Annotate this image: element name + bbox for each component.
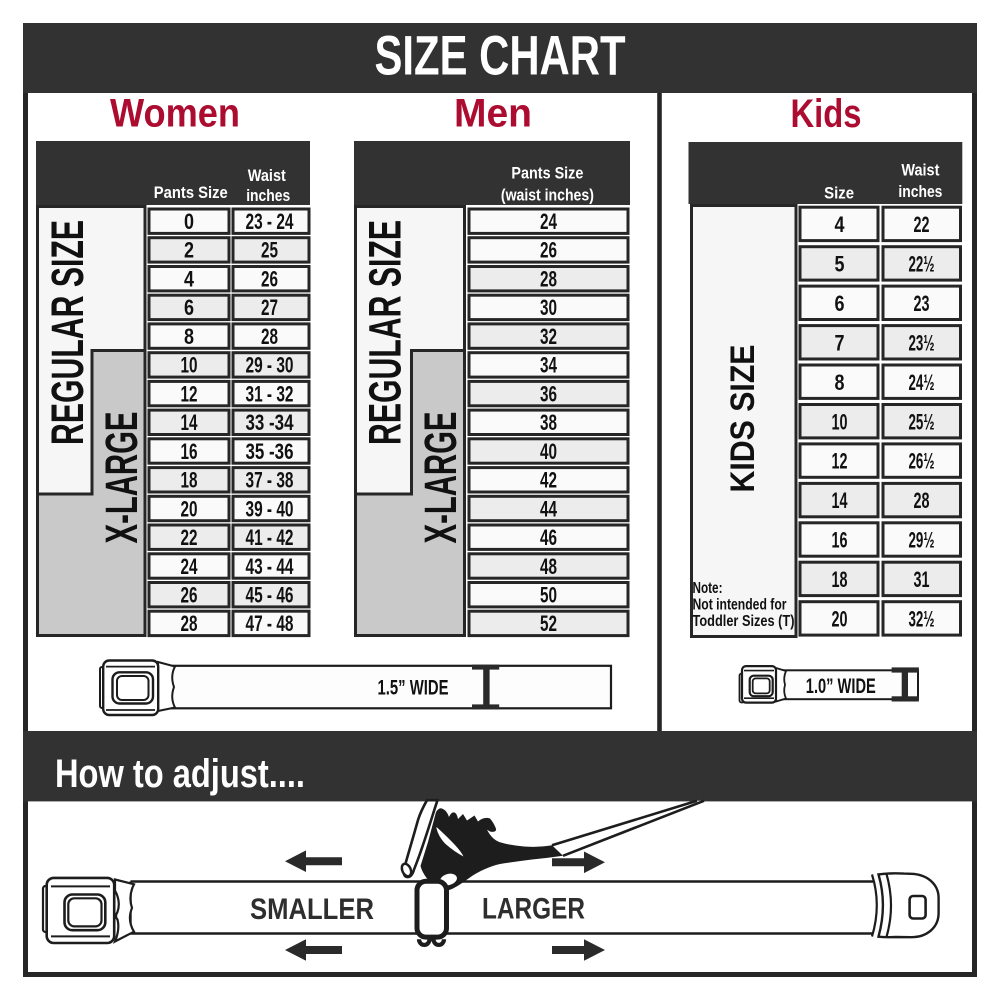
svg-text:4: 4 <box>835 212 846 237</box>
svg-text:(waist inches): (waist inches) <box>501 187 594 205</box>
svg-text:38: 38 <box>540 410 557 435</box>
svg-text:22: 22 <box>181 525 198 550</box>
svg-text:23½: 23½ <box>909 330 935 355</box>
svg-text:50: 50 <box>540 582 557 607</box>
svg-text:0: 0 <box>184 209 194 234</box>
svg-text:4: 4 <box>184 266 195 291</box>
svg-text:How to adjust....: How to adjust.... <box>55 752 305 796</box>
svg-text:31: 31 <box>914 567 930 592</box>
svg-text:37 - 38: 37 - 38 <box>246 468 294 493</box>
svg-text:44: 44 <box>540 496 558 521</box>
svg-text:31 - 32: 31 - 32 <box>246 381 294 406</box>
svg-text:28: 28 <box>261 324 278 349</box>
svg-text:28: 28 <box>914 488 930 513</box>
svg-text:26½: 26½ <box>909 449 935 474</box>
svg-text:Waist: Waist <box>901 162 939 180</box>
svg-text:39 - 40: 39 - 40 <box>246 496 294 521</box>
svg-text:LARGER: LARGER <box>482 892 585 925</box>
svg-text:26: 26 <box>261 266 278 291</box>
svg-text:24: 24 <box>181 554 199 579</box>
svg-text:6: 6 <box>184 295 194 320</box>
svg-text:X-LARGE: X-LARGE <box>96 412 147 544</box>
svg-text:28: 28 <box>540 266 557 291</box>
svg-text:23 - 24: 23 - 24 <box>246 209 295 234</box>
svg-text:32½: 32½ <box>909 607 935 632</box>
svg-text:REGULAR SIZE: REGULAR SIZE <box>42 220 93 445</box>
svg-text:45 - 46: 45 - 46 <box>246 582 294 607</box>
svg-text:Toddler Sizes (T): Toddler Sizes (T) <box>693 613 795 630</box>
svg-text:1.5” WIDE: 1.5” WIDE <box>378 677 449 700</box>
svg-text:2: 2 <box>184 238 194 263</box>
svg-text:26: 26 <box>540 238 557 263</box>
svg-text:Size: Size <box>824 184 854 202</box>
svg-text:SIZE CHART: SIZE CHART <box>375 24 626 87</box>
svg-text:16: 16 <box>832 528 848 553</box>
svg-text:12: 12 <box>832 449 848 474</box>
svg-text:28: 28 <box>181 611 198 636</box>
svg-text:48: 48 <box>540 554 557 579</box>
svg-text:Women: Women <box>110 92 240 136</box>
svg-text:47 - 48: 47 - 48 <box>246 611 294 636</box>
svg-text:KIDS SIZE: KIDS SIZE <box>724 345 762 493</box>
svg-text:10: 10 <box>181 353 198 378</box>
svg-text:25: 25 <box>261 238 278 263</box>
svg-text:inches: inches <box>246 187 290 205</box>
svg-text:SMALLER: SMALLER <box>250 893 374 926</box>
svg-text:Men: Men <box>454 92 532 136</box>
svg-text:Waist: Waist <box>248 167 286 185</box>
svg-text:29 - 30: 29 - 30 <box>246 353 294 378</box>
svg-text:22½: 22½ <box>909 251 935 276</box>
svg-text:Not intended for: Not intended for <box>693 596 787 613</box>
svg-text:46: 46 <box>540 525 557 550</box>
svg-text:X-LARGE: X-LARGE <box>415 412 466 544</box>
svg-text:24½: 24½ <box>909 370 935 395</box>
svg-text:7: 7 <box>835 330 845 355</box>
svg-text:26: 26 <box>181 582 198 607</box>
svg-text:1.0” WIDE: 1.0” WIDE <box>806 675 876 698</box>
svg-text:36: 36 <box>540 381 557 406</box>
svg-text:14: 14 <box>181 410 199 435</box>
svg-text:22: 22 <box>914 212 930 237</box>
svg-text:40: 40 <box>540 439 557 464</box>
svg-text:24: 24 <box>540 209 558 234</box>
svg-text:8: 8 <box>835 370 845 395</box>
svg-text:Pants Size: Pants Size <box>154 184 228 202</box>
svg-text:5: 5 <box>835 251 845 276</box>
svg-text:32: 32 <box>540 324 557 349</box>
svg-text:8: 8 <box>184 324 194 349</box>
svg-text:35 -36: 35 -36 <box>246 439 294 464</box>
svg-text:Pants Size: Pants Size <box>511 165 583 183</box>
svg-text:16: 16 <box>181 439 198 464</box>
svg-text:43 - 44: 43 - 44 <box>246 554 295 579</box>
svg-text:34: 34 <box>540 353 558 378</box>
svg-text:Note:: Note: <box>693 580 723 597</box>
svg-text:27: 27 <box>261 295 278 320</box>
svg-text:52: 52 <box>540 611 557 636</box>
svg-text:14: 14 <box>832 488 848 513</box>
svg-text:inches: inches <box>898 183 942 201</box>
svg-text:18: 18 <box>181 468 198 493</box>
svg-text:6: 6 <box>835 291 845 316</box>
svg-text:30: 30 <box>540 295 557 320</box>
svg-text:REGULAR SIZE: REGULAR SIZE <box>360 220 411 445</box>
svg-text:20: 20 <box>181 496 198 521</box>
svg-text:42: 42 <box>540 468 557 493</box>
svg-text:18: 18 <box>832 567 848 592</box>
svg-text:29½: 29½ <box>909 528 935 553</box>
svg-text:Kids: Kids <box>791 92 862 136</box>
svg-text:12: 12 <box>181 381 198 406</box>
svg-text:10: 10 <box>832 409 848 434</box>
svg-text:41 - 42: 41 - 42 <box>246 525 294 550</box>
svg-text:23: 23 <box>914 291 930 316</box>
svg-text:33 -34: 33 -34 <box>246 410 295 435</box>
svg-text:20: 20 <box>832 607 848 632</box>
svg-text:25½: 25½ <box>909 409 935 434</box>
